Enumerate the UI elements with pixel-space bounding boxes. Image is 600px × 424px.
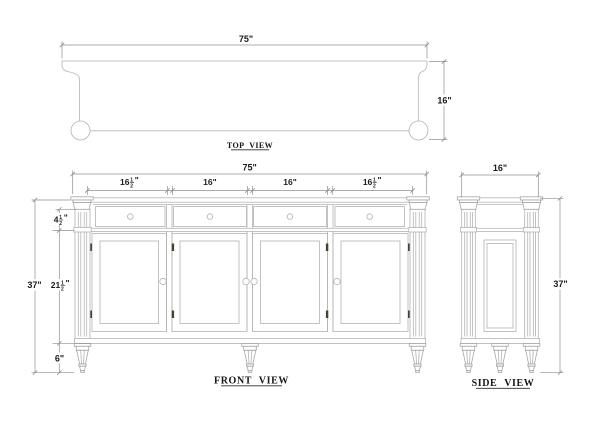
door-1-panel [100,241,159,324]
drawer-1 [96,207,166,227]
door-2-panel [180,241,239,324]
front-leg-center [242,344,259,373]
drawer-knob-2 [207,214,213,220]
dim-top-depth-label: 16" [437,96,451,106]
hinge-icon [172,311,174,319]
top-view-outline [62,61,428,140]
front-drawers [96,207,405,227]
door-2 [172,234,247,332]
side-leg-front [460,344,477,373]
side-apron [461,339,540,344]
dim-top-depth: 16" [429,59,453,141]
svg-text:21: 21 [51,280,61,290]
svg-text:TOP VIEW: TOP VIEW [227,141,273,150]
dim-front-drawer-height: 4 1 2 " [51,213,68,227]
front-view: 75" 16 1 2 " 16" 16" 16 1 2 [27,163,430,387]
column-capital [71,197,93,210]
svg-text:": " [64,213,68,223]
drawer-4 [335,207,405,227]
sideboard-technical-drawing: 75" 16" TOP VIEW [0,0,600,424]
door-knob-2 [243,278,249,284]
svg-text:": " [135,175,139,185]
front-hinges [90,244,411,319]
side-view: 16" 37" SIDE VIEW [457,163,569,389]
column-ring [409,228,426,232]
front-leg-right [409,344,426,373]
dim-top-width-label: 75" [239,34,253,44]
column-ring [74,228,91,232]
dim-side-height-label: 37" [553,279,567,289]
drawer-knob-1 [128,214,134,220]
front-view-label: FRONT VIEW [214,376,289,387]
dim-front-door-height: 21 1 2 " [48,278,70,292]
svg-text:SIDE VIEW: SIDE VIEW [472,378,535,389]
front-leg-left [74,344,91,373]
side-leg-middle [492,344,509,373]
door-4-panel [341,241,400,324]
front-columns [71,197,429,339]
door-knob-3 [251,278,257,284]
top-view: 75" 16" TOP VIEW [60,34,453,150]
svg-text:2: 2 [61,286,64,292]
top-corner-right [409,121,428,140]
door-knob-4 [334,278,340,284]
column-capital [457,197,479,210]
svg-text:": " [66,278,70,288]
dim-top-width: 75" [60,34,429,59]
dim-front-leg-height: 6" [52,353,67,364]
svg-text:2: 2 [373,183,376,189]
column-capital [520,197,542,210]
front-stiles [167,205,334,332]
dim-section-2: 16" [203,177,217,187]
door-3-panel [261,241,320,324]
drawer-knob-3 [287,214,293,220]
drawer-3 [254,207,327,227]
door-1 [92,234,167,332]
technical-drawing-page: 75" 16" TOP VIEW [0,0,600,424]
front-apron [75,339,426,344]
dim-front-height-label: 37" [27,280,41,290]
svg-text:6": 6" [55,354,64,364]
front-moulding [75,228,426,231]
side-leg-back [523,344,540,373]
column-capital [407,197,429,210]
svg-text:16: 16 [120,177,130,187]
svg-text:4: 4 [54,215,59,225]
door-3 [253,234,328,332]
hinge-icon [172,244,174,252]
door-knob-1 [160,278,166,284]
dim-side-depth: 16" [460,163,541,198]
door-4 [333,234,408,332]
dim-side-height: 37" [540,196,570,375]
svg-text:": " [378,175,382,185]
dim-section-3: 16" [283,177,297,187]
dim-side-depth-label: 16" [493,163,507,173]
svg-text:2: 2 [130,183,133,189]
top-view-label: TOP VIEW [227,141,273,150]
svg-text:FRONT VIEW: FRONT VIEW [214,376,289,387]
svg-text:16: 16 [363,177,373,187]
front-top-slab [73,198,427,202]
dim-section-1: 16 1 2 " [120,175,139,189]
hinge-icon [326,244,328,252]
dim-front-width-label: 75" [243,163,257,173]
top-corner-left [71,121,90,140]
svg-text:2: 2 [59,221,62,227]
column-ring [460,228,476,232]
side-panel [484,240,516,332]
front-doors [92,234,408,332]
side-columns [457,197,542,339]
drawer-knob-4 [367,214,373,220]
hinge-icon [326,311,328,319]
column-ring [523,228,539,232]
drawer-2 [174,207,247,227]
dim-front-sections: 16 1 2 " 16" 16" 16 1 2 " [85,175,415,195]
dim-section-4: 16 1 2 " [363,175,382,189]
side-view-label: SIDE VIEW [472,378,535,389]
